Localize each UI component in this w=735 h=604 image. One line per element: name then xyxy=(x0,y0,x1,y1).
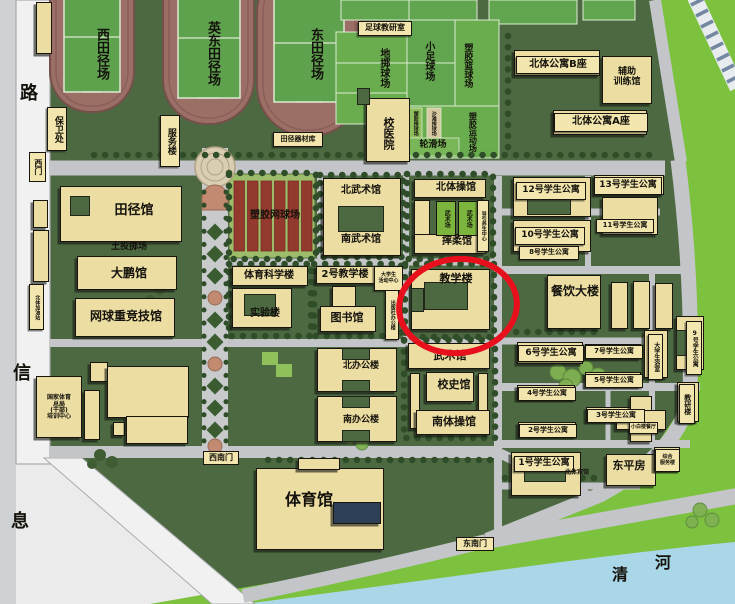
building-block xyxy=(33,200,48,228)
building-teaching-research: 教研楼 xyxy=(679,384,695,424)
building-south-wushu-gym: 南武术馆 xyxy=(334,234,388,247)
restaurant-xiaobailou: 小白楼餐厅 xyxy=(629,422,658,434)
field-roller-skating: 轮滑场 xyxy=(412,140,454,152)
gate-west: 西门 xyxy=(29,152,46,182)
courtyard xyxy=(70,196,90,216)
field-throwing: 土投掷场 xyxy=(107,242,151,254)
apartment-11: 11号学生公寓 xyxy=(596,219,654,233)
building-north-office: 北办公楼 xyxy=(337,361,385,373)
field-plastic-basketball: 塑胶篮球场 xyxy=(459,36,474,94)
bathhouse-students: 大学生浴室 xyxy=(648,334,663,380)
apartment-12: 12号学生公寓 xyxy=(516,182,586,200)
apartment-3: 3号学生公寓 xyxy=(587,409,645,423)
road-label-lu: 路 xyxy=(20,84,38,103)
building-block xyxy=(633,281,650,329)
apartment-8: 8号学生公寓 xyxy=(519,246,579,260)
road-label-xi: 息 xyxy=(11,512,29,531)
building-tennis-heavy-athletics: 网球重竞技馆 xyxy=(86,309,166,324)
building-east-pingfang: 东平房 xyxy=(610,459,648,473)
apartment-7: 7号学生公寓 xyxy=(585,345,643,359)
apartment-10: 10号学生公寓 xyxy=(515,227,585,245)
building-block xyxy=(298,458,340,470)
field-east-track: 东田径场 xyxy=(306,20,324,88)
courtyard xyxy=(357,88,370,105)
field-west-track: 西田径场 xyxy=(92,20,110,88)
campus-map: 路信息清河西门西南门东南门西田径场英东田径场东田径场足球教研室地掷球场小足球场塑… xyxy=(0,0,735,604)
apartment-4: 4号学生公寓 xyxy=(518,387,576,401)
building-wrestling-judo: 摔柔馆 xyxy=(434,236,480,249)
building-school-history: 校史馆 xyxy=(433,378,475,391)
courtyard xyxy=(342,380,370,392)
building-service: 服务楼 xyxy=(160,115,180,167)
apartment-13: 13号学生公寓 xyxy=(594,177,662,195)
building-block xyxy=(33,230,49,282)
apartment-6: 6号学生公寓 xyxy=(518,345,584,362)
building-block xyxy=(126,416,188,444)
river-label-qing: 清 xyxy=(612,566,628,583)
courtyard xyxy=(342,396,370,408)
field-small-football: 小足球场 xyxy=(420,35,435,87)
storage-track-equipment: 田径器材库 xyxy=(273,132,323,147)
field-wushu-2: 武术场 xyxy=(458,201,478,236)
courtyard xyxy=(338,206,384,232)
building-comprehensive-service: 综合 服务楼 xyxy=(655,449,680,472)
gate-southwest: 西南门 xyxy=(203,451,239,465)
courtyard xyxy=(342,348,370,360)
apartment-5: 5号学生公寓 xyxy=(585,374,643,388)
field-plastic-sports: 塑胶运动场 xyxy=(466,106,478,158)
field-bocce: 地掷球场 xyxy=(375,42,390,94)
courtyard xyxy=(342,430,370,442)
building-sport-science: 体育科学楼 xyxy=(236,270,302,283)
gate-southeast: 东南门 xyxy=(456,537,494,551)
building-block xyxy=(611,282,628,329)
building-block xyxy=(36,2,52,54)
building-track-field-gym: 田径馆 xyxy=(109,203,159,219)
building-teaching-2: 2号教学楼 xyxy=(316,269,374,282)
building-beiti-apartment-a: 北体公寓A座 xyxy=(554,113,648,132)
center-national-training: 国家体育 总局 (干部) 培训中心 xyxy=(38,381,80,435)
building-south-gymnastics: 南体操馆 xyxy=(429,415,479,428)
station-beiti-gas: 北体加油站 xyxy=(29,284,44,330)
building-block xyxy=(107,366,189,418)
building-block xyxy=(84,390,100,440)
river-label-he: 河 xyxy=(655,554,671,571)
building-block xyxy=(414,200,430,236)
building-security-office: 保卫处 xyxy=(47,107,67,151)
building-hospital: 校医院 xyxy=(380,110,396,156)
building-beiti-apartment-b: 北体公寓B座 xyxy=(516,56,600,74)
field-plastic-volleyball: 塑胶排球场 xyxy=(410,108,420,139)
building-dining: 餐饮大楼 xyxy=(550,284,600,299)
building-south-office: 南办公楼 xyxy=(337,415,385,427)
center-student-activity: 大学生 活动中心 xyxy=(374,266,403,291)
field-wushu-1: 武术场 xyxy=(436,201,456,236)
field-plastic-tennis: 塑胶网球场 xyxy=(245,210,305,223)
apartment-2: 2号学生公寓 xyxy=(519,424,577,438)
field-yingdong-track: 英东田径场 xyxy=(203,10,221,96)
building-block xyxy=(332,286,356,308)
building-dapeng-gym: 大鹏馆 xyxy=(107,266,151,281)
field-beach-volleyball: 沙滩排球场 xyxy=(428,108,438,139)
hotel-beiti: 北体宾馆 xyxy=(562,468,592,478)
building-block xyxy=(90,362,108,382)
building-north-gymnastics: 北体操馆 xyxy=(429,182,483,195)
building-library: 图书馆 xyxy=(326,311,368,325)
building-block xyxy=(655,283,673,329)
building-north-wushu-gym: 北武术馆 xyxy=(334,185,388,198)
building-gymnasium: 体育馆 xyxy=(276,490,342,510)
building-auxiliary-training: 辅助 训练馆 xyxy=(606,62,648,94)
office-football-research: 足球教研室 xyxy=(358,21,412,36)
apartment-9: 9号学生公寓 xyxy=(686,321,702,375)
building-laboratory: 实验楼 xyxy=(244,308,286,321)
road-label-xin: 信 xyxy=(13,364,31,383)
building-block xyxy=(113,422,125,436)
